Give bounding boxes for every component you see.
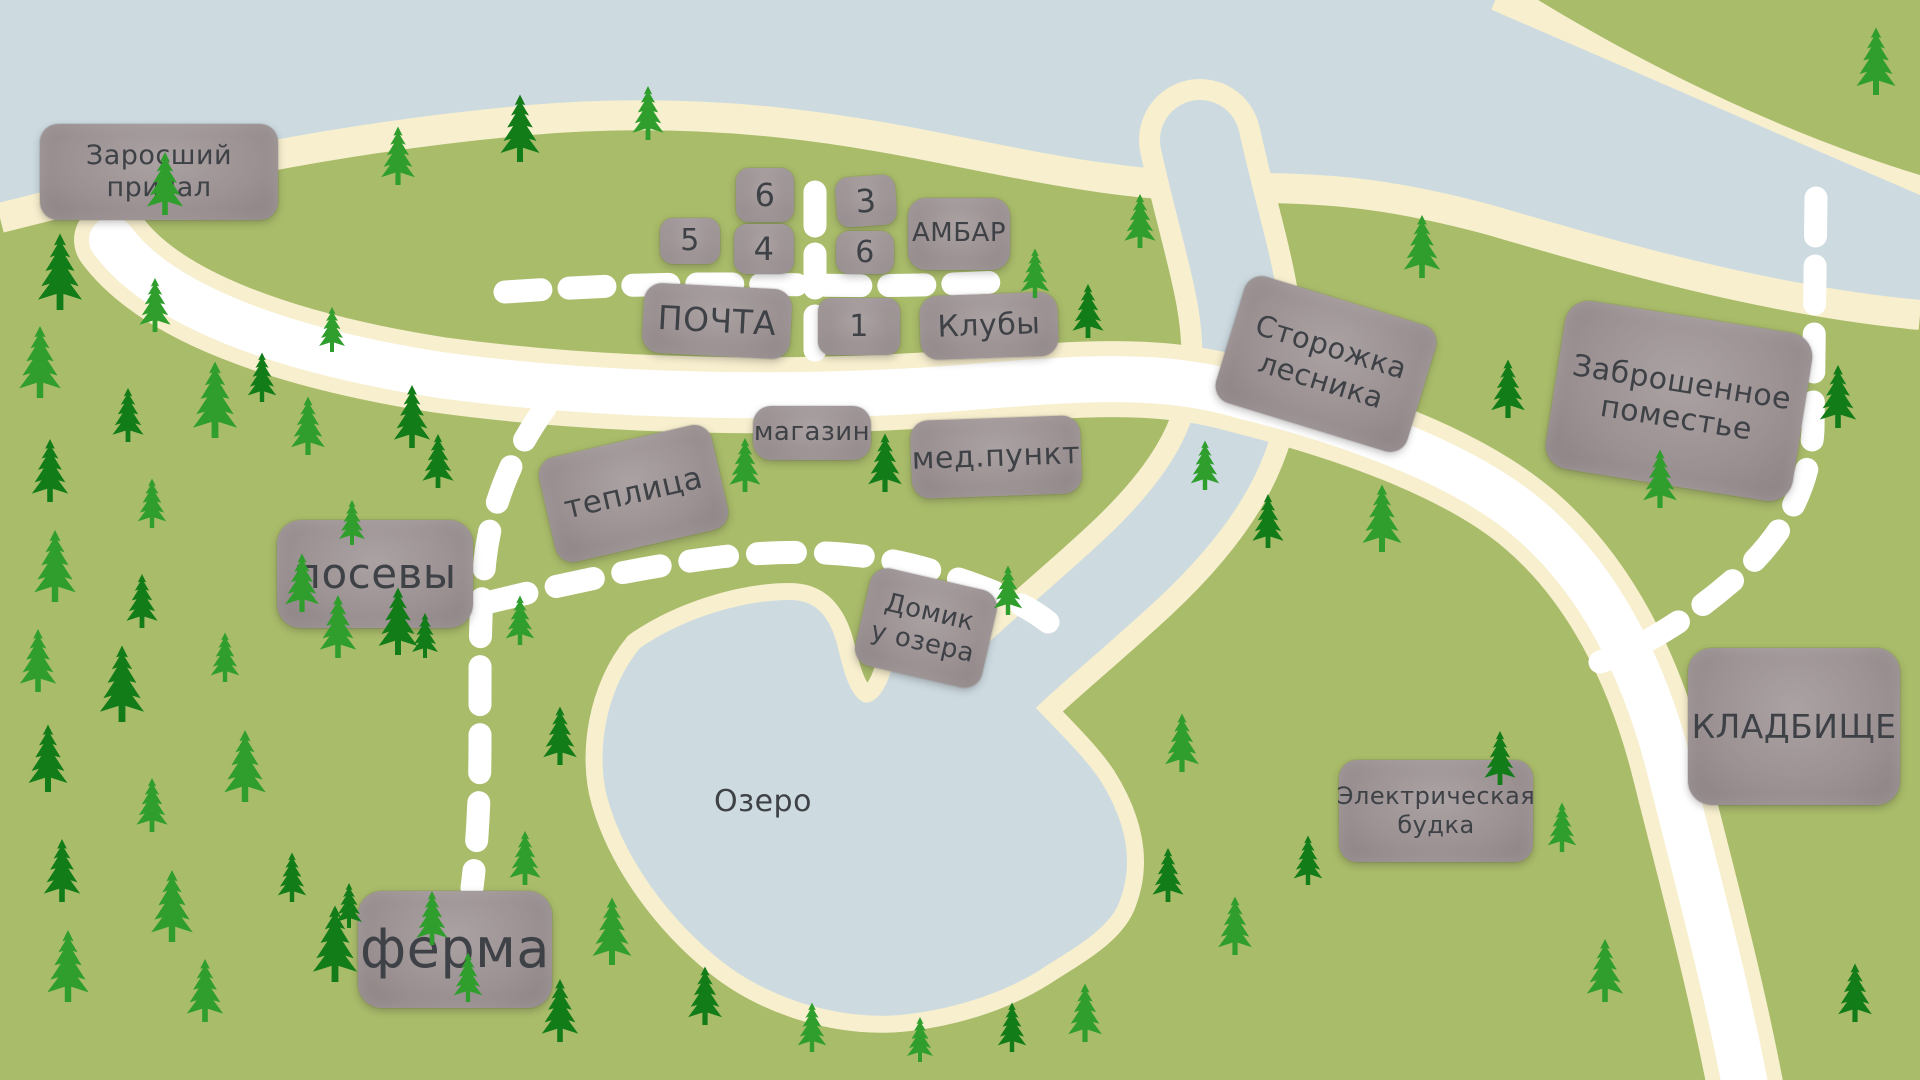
place-storozhka-lesnika-label: Сторожка лесника — [1241, 308, 1411, 420]
place-ferma-label: ферма — [360, 917, 550, 982]
place-ozero[interactable]: Озеро — [688, 780, 838, 824]
place-zarosshiy-prichal[interactable]: Заросший причал — [40, 124, 278, 220]
place-ambar-label: АМБАР — [912, 218, 1006, 249]
place-elektricheskaya-budka[interactable]: Электрическая будка — [1339, 760, 1533, 862]
place-house-1-label: 1 — [849, 309, 869, 345]
place-house-6b-label: 6 — [855, 235, 875, 271]
place-zabroshennoe-pomestye-label: Заброшенное поместье — [1564, 348, 1794, 454]
place-pochta[interactable]: ПОЧТА — [641, 282, 792, 360]
place-teplitsa[interactable]: теплица — [535, 421, 732, 565]
place-house-5[interactable]: 5 — [660, 218, 720, 264]
place-house-5-label: 5 — [680, 223, 700, 259]
place-house-6a[interactable]: 6 — [736, 168, 794, 222]
place-house-3-label: 3 — [854, 181, 877, 221]
place-labels-layer: Заросший причал65436АМБАРПОЧТА1Клубымага… — [0, 0, 1920, 1080]
place-house-4-label: 4 — [754, 230, 775, 268]
place-teplitsa-label: теплица — [561, 460, 707, 528]
place-kluby-label: Клубы — [937, 306, 1041, 346]
place-magazin[interactable]: магазин — [753, 406, 871, 460]
place-ambar[interactable]: АМБАР — [908, 198, 1010, 270]
place-ferma[interactable]: ферма — [358, 891, 552, 1008]
place-zabroshennoe-pomestye[interactable]: Заброшенное поместье — [1542, 297, 1816, 504]
place-pochta-label: ПОЧТА — [657, 298, 778, 344]
place-ozero-label: Озеро — [714, 784, 812, 820]
place-house-6b[interactable]: 6 — [836, 231, 894, 274]
place-domik-u-ozera[interactable]: Домик у озера — [851, 565, 1000, 692]
place-house-3[interactable]: 3 — [834, 174, 897, 228]
place-kluby[interactable]: Клубы — [919, 292, 1059, 361]
place-med-punkt-label: мед.пункт — [911, 436, 1081, 478]
place-med-punkt[interactable]: мед.пункт — [910, 415, 1083, 499]
place-magazin-label: магазин — [754, 417, 870, 448]
place-house-1[interactable]: 1 — [818, 298, 900, 355]
village-map: Заросший причал65436АМБАРПОЧТА1Клубымага… — [0, 0, 1920, 1080]
place-house-4[interactable]: 4 — [734, 224, 794, 274]
place-zarosshiy-prichal-label: Заросший причал — [86, 140, 232, 205]
place-house-6a-label: 6 — [755, 176, 776, 214]
place-domik-u-ozera-label: Домик у озера — [868, 586, 985, 670]
place-storozhka-lesnika[interactable]: Сторожка лесника — [1211, 272, 1441, 457]
place-posevy-label: посевы — [293, 549, 456, 599]
place-posevy[interactable]: посевы — [277, 520, 473, 628]
place-elektricheskaya-budka-label: Электрическая будка — [1337, 782, 1535, 840]
place-kladbishche-label: КЛАДБИЩЕ — [1692, 707, 1897, 747]
place-kladbishche[interactable]: КЛАДБИЩЕ — [1688, 648, 1900, 805]
